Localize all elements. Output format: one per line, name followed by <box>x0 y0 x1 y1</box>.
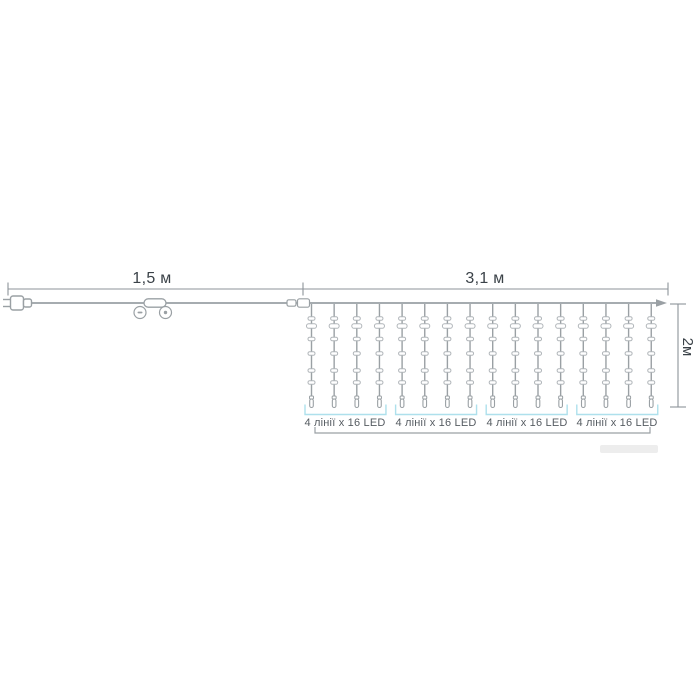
led-mark-icon <box>331 352 338 355</box>
led-mark-icon <box>602 381 609 384</box>
led-mark-icon <box>535 317 542 320</box>
led-mark-icon <box>399 337 406 340</box>
led-mark-icon <box>376 317 383 320</box>
led-mark-icon <box>512 369 519 372</box>
drop-connector-icon <box>510 324 520 329</box>
led-mark-icon <box>648 381 655 384</box>
led-mark-icon <box>467 381 474 384</box>
power-plug-icon <box>3 296 32 310</box>
drop-bulb-icon <box>514 399 518 408</box>
led-mark-icon <box>353 337 360 340</box>
drop-connector-icon <box>578 324 588 329</box>
led-mark-icon <box>331 381 338 384</box>
drop-connector-icon <box>465 324 475 329</box>
drop-connector-icon <box>488 324 498 329</box>
led-mark-icon <box>376 352 383 355</box>
led-mark-icon <box>535 337 542 340</box>
led-mark-icon <box>512 352 519 355</box>
drop-bulb-icon <box>582 399 586 408</box>
led-mark-icon <box>421 337 428 340</box>
led-mark-icon <box>512 381 519 384</box>
led-mark-icon <box>557 381 564 384</box>
badge-circles <box>134 307 172 319</box>
led-mark-icon <box>625 381 632 384</box>
led-mark-icon <box>467 352 474 355</box>
led-mark-icon <box>625 317 632 320</box>
led-mark-icon <box>512 317 519 320</box>
led-mark-icon <box>331 337 338 340</box>
led-mark-icon <box>580 317 587 320</box>
drop-bulb-icon <box>536 399 540 408</box>
led-mark-icon <box>625 337 632 340</box>
drop-bulb-icon <box>604 399 608 408</box>
led-mark-icon <box>353 381 360 384</box>
diagram-canvas: 1,5 м 3,1 м 2м 4 лінії x 16 LED 4 лінії … <box>0 0 700 700</box>
drop-connector-icon <box>646 324 656 329</box>
led-mark-icon <box>467 337 474 340</box>
led-mark-icon <box>557 352 564 355</box>
led-mark-icon <box>444 381 451 384</box>
led-mark-icon <box>648 317 655 320</box>
curtain-drops <box>305 304 658 415</box>
led-mark-icon <box>467 369 474 372</box>
led-mark-icon <box>648 369 655 372</box>
led-mark-icon <box>580 337 587 340</box>
cable-connector-icon <box>287 299 310 307</box>
led-mark-icon <box>399 369 406 372</box>
led-mark-icon <box>535 369 542 372</box>
vertical-dimension-line <box>670 304 686 407</box>
led-mark-icon <box>376 381 383 384</box>
led-mark-icon <box>421 317 428 320</box>
led-mark-icon <box>489 337 496 340</box>
drop-connector-icon <box>556 324 566 329</box>
drop-bulb-icon <box>310 399 314 408</box>
led-mark-icon <box>331 317 338 320</box>
drop-bulb-icon <box>378 399 382 408</box>
watermark <box>600 445 658 453</box>
led-mark-icon <box>602 352 609 355</box>
led-mark-icon <box>376 337 383 340</box>
led-mark-icon <box>602 317 609 320</box>
led-mark-icon <box>421 381 428 384</box>
drop-connector-icon <box>397 324 407 329</box>
drop-bulb-icon <box>423 399 427 408</box>
led-mark-icon <box>535 381 542 384</box>
drop-connector-icon <box>624 324 634 329</box>
drop-bulb-icon <box>559 399 563 408</box>
drop-bulb-icon <box>400 399 404 408</box>
led-mark-icon <box>444 369 451 372</box>
led-mark-icon <box>557 317 564 320</box>
led-mark-icon <box>308 381 315 384</box>
led-mark-icon <box>648 337 655 340</box>
led-mark-icon <box>489 369 496 372</box>
led-mark-icon <box>512 337 519 340</box>
group-bracket <box>396 405 477 415</box>
drop-bulb-icon <box>649 399 653 408</box>
led-mark-icon <box>353 317 360 320</box>
led-mark-icon <box>444 337 451 340</box>
led-mark-icon <box>625 369 632 372</box>
drop-bulb-icon <box>627 399 631 408</box>
led-mark-icon <box>421 369 428 372</box>
group-bracket <box>305 405 386 415</box>
wire-end-arrow-icon <box>656 299 667 306</box>
horizontal-dimension-line <box>8 283 668 296</box>
diagram-drawing <box>0 0 700 700</box>
led-mark-icon <box>489 381 496 384</box>
led-mark-icon <box>376 369 383 372</box>
drop-connector-icon <box>442 324 452 329</box>
drop-connector-icon <box>420 324 430 329</box>
led-mark-icon <box>444 317 451 320</box>
drop-bulb-icon <box>332 399 336 408</box>
drop-connector-icon <box>533 324 543 329</box>
led-mark-icon <box>308 369 315 372</box>
led-mark-icon <box>308 337 315 340</box>
led-mark-icon <box>399 352 406 355</box>
led-mark-icon <box>557 369 564 372</box>
drop-bulb-icon <box>468 399 472 408</box>
inline-controller-icon <box>144 299 166 307</box>
led-mark-icon <box>602 337 609 340</box>
drop-bulb-icon <box>446 399 450 408</box>
led-mark-icon <box>444 352 451 355</box>
led-mark-icon <box>331 369 338 372</box>
drop-connector-icon <box>601 324 611 329</box>
led-mark-icon <box>489 317 496 320</box>
led-mark-icon <box>580 381 587 384</box>
drop-connector-icon <box>352 324 362 329</box>
group-bracket <box>486 405 567 415</box>
led-mark-icon <box>535 352 542 355</box>
led-mark-icon <box>625 352 632 355</box>
led-mark-icon <box>308 317 315 320</box>
led-mark-icon <box>308 352 315 355</box>
drop-connector-icon <box>329 324 339 329</box>
led-mark-icon <box>353 352 360 355</box>
drop-connector-icon <box>307 324 317 329</box>
led-mark-icon <box>421 352 428 355</box>
led-mark-icon <box>580 352 587 355</box>
led-mark-icon <box>467 317 474 320</box>
led-mark-icon <box>648 352 655 355</box>
led-mark-icon <box>489 352 496 355</box>
drop-bulb-icon <box>355 399 359 408</box>
led-mark-icon <box>557 337 564 340</box>
led-mark-icon <box>399 317 406 320</box>
led-mark-icon <box>399 381 406 384</box>
led-mark-icon <box>602 369 609 372</box>
led-mark-icon <box>580 369 587 372</box>
group-bracket <box>577 405 658 415</box>
drop-bulb-icon <box>491 399 495 408</box>
drop-connector-icon <box>374 324 384 329</box>
overall-bracket <box>315 427 650 433</box>
led-mark-icon <box>353 369 360 372</box>
